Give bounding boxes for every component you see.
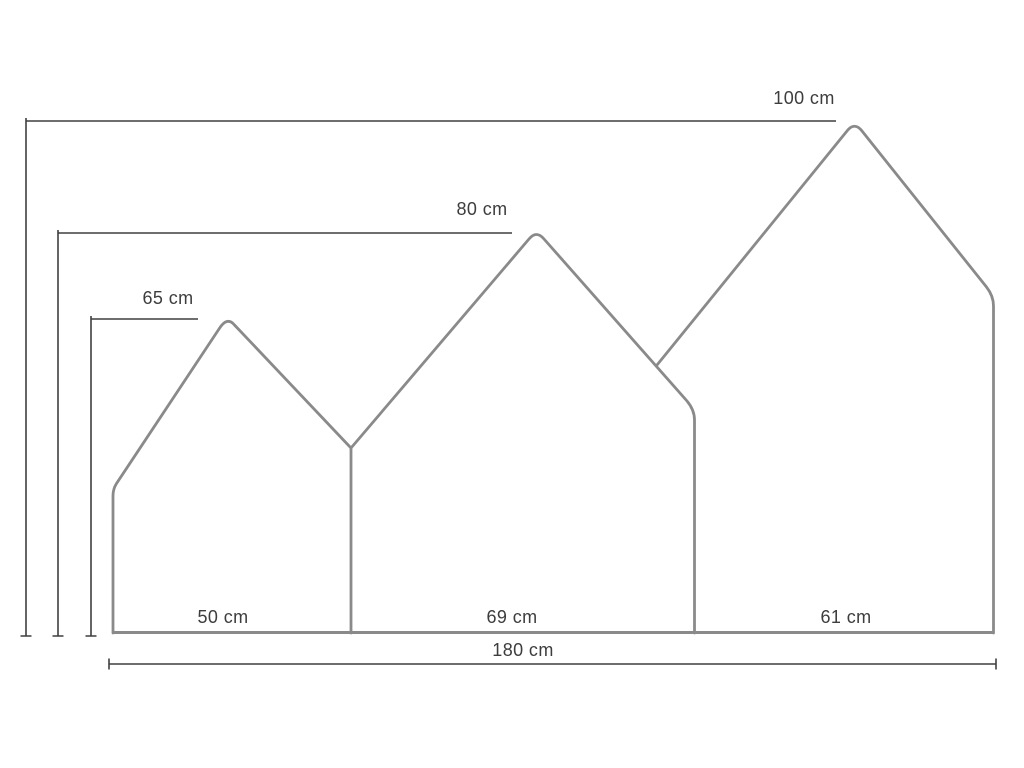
dimension-line-height-100cm [21, 118, 837, 636]
width-label-left-panel: 50 cm [197, 607, 248, 627]
width-label-middle-panel: 69 cm [486, 607, 537, 627]
headboard-dimension-drawing: 100 cm 80 cm 65 cm 50 cm 69 cm 61 cm 180… [0, 0, 1024, 768]
dimension-line-height-65cm [86, 316, 199, 636]
panel-left-outline [113, 321, 351, 633]
height-label-left-panel: 65 cm [142, 288, 193, 308]
dimension-line-height-80cm [53, 230, 513, 636]
dimension-line-width-180cm [109, 659, 996, 670]
panel-right-outline [657, 126, 994, 633]
total-width-label: 180 cm [492, 640, 553, 660]
dimension-diagram: 100 cm 80 cm 65 cm 50 cm 69 cm 61 cm 180… [0, 0, 1024, 768]
panel-middle-outline [351, 235, 695, 634]
width-label-right-panel: 61 cm [820, 607, 871, 627]
height-label-middle-panel: 80 cm [456, 199, 507, 219]
height-label-right-panel: 100 cm [773, 88, 834, 108]
